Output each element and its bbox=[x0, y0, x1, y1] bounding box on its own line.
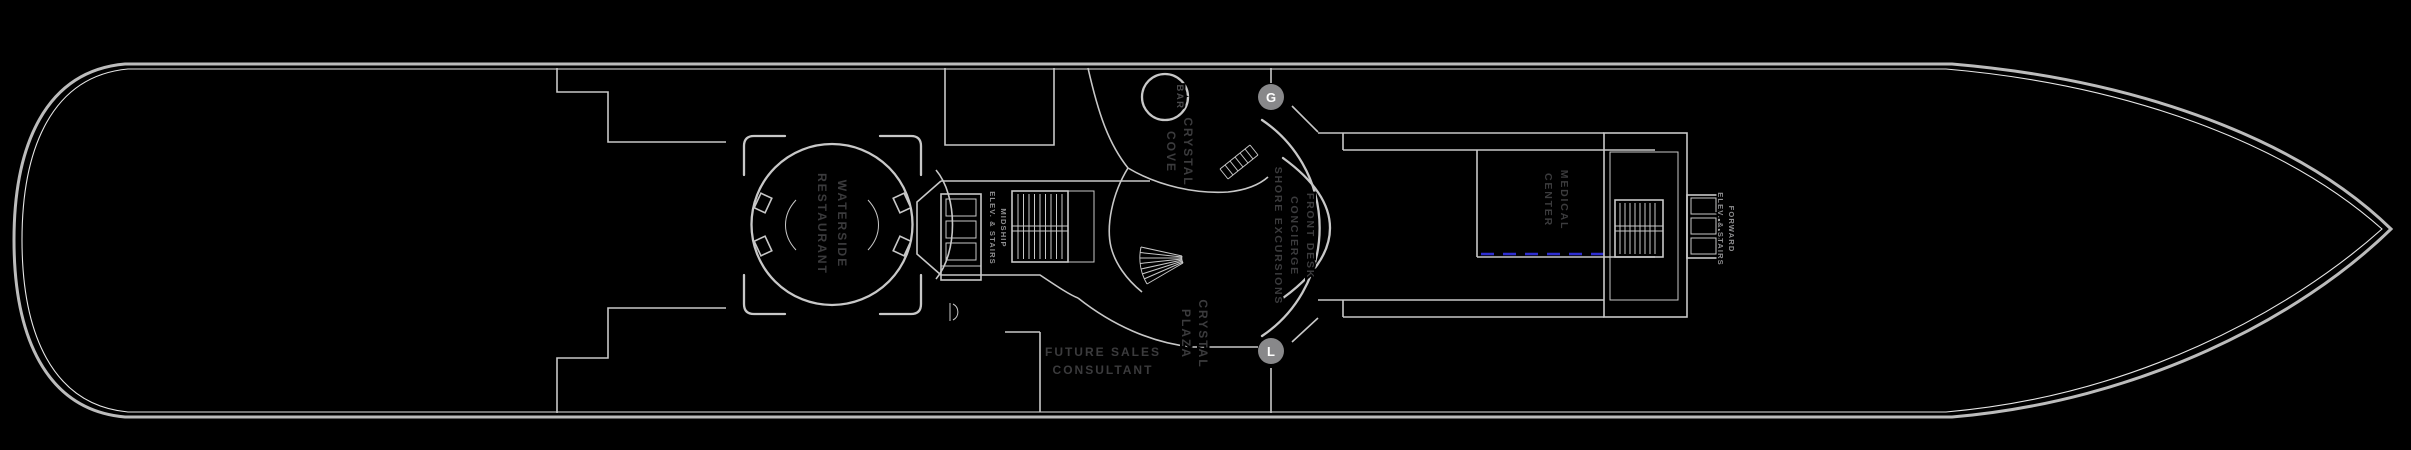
plaza-lower-curve bbox=[1078, 298, 1258, 347]
restaurant-label-line1: WATERSIDE bbox=[835, 180, 849, 268]
restaurant-inner-arc-left bbox=[786, 200, 797, 250]
elevator-cab bbox=[1691, 218, 1716, 234]
midship-elevators: MIDSHIP ELEV. & STAIRS bbox=[917, 68, 1150, 298]
deck-plan-canvas: WATERSIDE RESTAURANT MIDSHIP ELEV. & STA… bbox=[0, 0, 2411, 450]
plaza-fan-staircase bbox=[1140, 247, 1183, 284]
office-walls bbox=[1005, 332, 1040, 412]
elevator-cab bbox=[946, 221, 976, 238]
stern-section-walls bbox=[557, 68, 726, 413]
medical-center: MEDICAL CENTER bbox=[1477, 150, 1655, 257]
forward-elevator-bank bbox=[1687, 195, 1719, 258]
forward-stair-treads bbox=[1620, 203, 1655, 254]
midship-elev-label-line2: ELEV. & STAIRS bbox=[988, 191, 997, 265]
bar-label: BAR bbox=[1174, 84, 1185, 109]
elevator-cab bbox=[1691, 198, 1716, 214]
future-sales-label-line2: CONSULTANT bbox=[1053, 363, 1154, 377]
restaurant-corner-bracket-bl bbox=[744, 275, 785, 314]
restaurant-round-wall bbox=[752, 144, 913, 305]
restaurant-corner-bracket-br bbox=[880, 275, 921, 314]
wall-below-l bbox=[1271, 318, 1318, 413]
front-desk-label-line3: SHORE EXCURSIONS bbox=[1272, 167, 1284, 306]
forward-elevators: FORWARD ELEV. & STAIRS bbox=[1604, 133, 1736, 317]
elevator-cab bbox=[1691, 238, 1716, 254]
podium bbox=[950, 303, 958, 321]
forward-stair-landing bbox=[1615, 226, 1663, 231]
front-desk-area: FRONT DESK CONCIERGE SHORE EXCURSIONS bbox=[1272, 167, 1316, 306]
forward-stairwell bbox=[1615, 200, 1663, 257]
cove-curved-wall bbox=[1088, 68, 1128, 168]
lobby-bottom-wall bbox=[941, 275, 1078, 298]
gentlemen-badge-letter: G bbox=[1266, 90, 1276, 105]
upper-step-wall bbox=[557, 68, 726, 142]
restaurant-label-line2: RESTAURANT bbox=[815, 173, 829, 275]
lobby-chevron-wall bbox=[917, 181, 941, 275]
elevator-bank-outline bbox=[941, 194, 981, 280]
medical-label-line1: MEDICAL bbox=[1558, 170, 1570, 230]
plaza-label-line1: CRYSTAL bbox=[1196, 299, 1210, 368]
corridor-lower-wall bbox=[1318, 300, 1604, 317]
cove-label-line1: CRYSTAL bbox=[1181, 117, 1195, 186]
midship-elev-label-line1: MIDSHIP bbox=[999, 208, 1008, 247]
future-sales-label-line1: FUTURE SALES bbox=[1045, 345, 1161, 359]
medical-label-line2: CENTER bbox=[1542, 173, 1554, 227]
cove-label-line2: COVE bbox=[1164, 131, 1178, 173]
plaza-left-curve bbox=[1109, 168, 1142, 292]
lobby-arc bbox=[936, 170, 953, 279]
cove-stair-hatch bbox=[1220, 145, 1258, 179]
restaurant-corner-bracket-tr bbox=[880, 136, 921, 175]
waterside-restaurant: WATERSIDE RESTAURANT bbox=[744, 136, 921, 314]
deck-plan: WATERSIDE RESTAURANT MIDSHIP ELEV. & STA… bbox=[0, 0, 2411, 450]
midship-stair-landing-right bbox=[1068, 191, 1094, 262]
forward-elev-label-line2: ELEV. & STAIRS bbox=[1716, 192, 1725, 266]
restaurant-corner-bracket-tl bbox=[744, 136, 785, 175]
forward-elev-label-line1: FORWARD bbox=[1727, 206, 1736, 253]
front-desk-label-line1: FRONT DESK bbox=[1304, 193, 1316, 279]
plaza-upper-curve bbox=[1128, 168, 1268, 192]
future-sales-office: FUTURE SALES CONSULTANT bbox=[1005, 332, 1161, 412]
upper-service-room bbox=[945, 68, 1054, 145]
ladies-badge-letter: L bbox=[1267, 344, 1275, 359]
crystal-cove: BAR CRYSTAL COVE bbox=[1088, 68, 1258, 187]
front-desk-label-line2: CONCIERGE bbox=[1288, 196, 1300, 276]
restaurant-inner-arc-right bbox=[868, 200, 879, 250]
lower-step-wall bbox=[557, 308, 726, 413]
plaza-label-line2: PLAZA bbox=[1179, 309, 1193, 359]
